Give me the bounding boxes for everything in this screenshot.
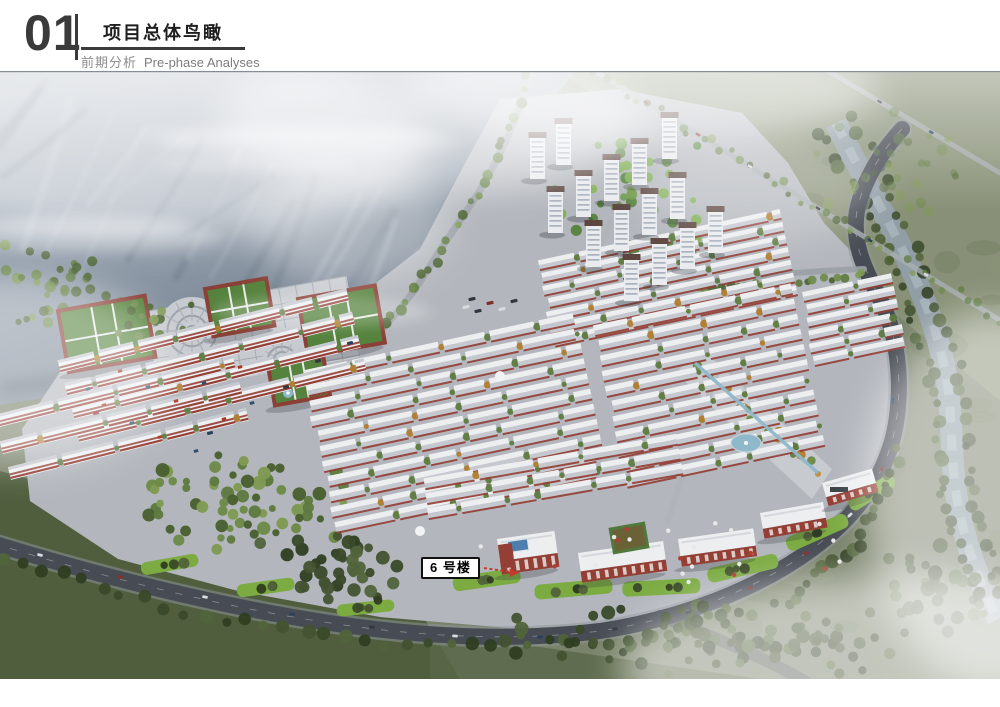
header-divider [75,14,78,60]
section-number: 01 [24,4,82,62]
subtitle-en: Pre-phase Analyses [144,55,260,70]
page-subtitle: 前期分析Pre-phase Analyses [81,52,260,71]
header-titles: 项目总体鸟瞰 前期分析Pre-phase Analyses [81,0,260,71]
title-underline [81,47,245,50]
building-6-label: 6 号楼 [421,557,480,579]
building-6-label-text: 6 号楼 [430,560,471,575]
page-title: 项目总体鸟瞰 [81,19,245,45]
aerial-rendering: 6 号楼 [0,71,1000,679]
slide-header: 01 项目总体鸟瞰 前期分析Pre-phase Analyses [0,0,1000,71]
aerial-rendering-canvas [0,71,1000,679]
subtitle-cn: 前期分析 [81,55,137,70]
